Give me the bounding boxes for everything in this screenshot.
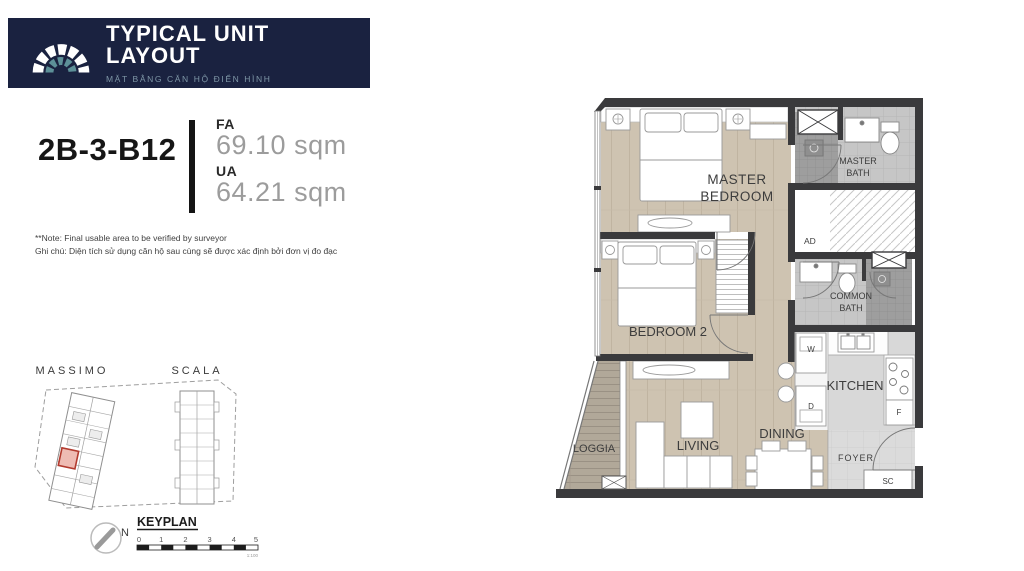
scale-caption: 1:100 bbox=[247, 553, 259, 558]
page-title: TYPICAL UNIT LAYOUT bbox=[106, 23, 370, 67]
svg-text:3: 3 bbox=[208, 535, 212, 544]
room-label-kitchen: KITCHEN bbox=[826, 378, 883, 393]
tag-washer: W bbox=[807, 345, 815, 354]
room-label-master-bedroom-1: MASTER bbox=[707, 172, 766, 187]
vertical-divider bbox=[189, 120, 195, 213]
tag-shoe-cabinet: SC bbox=[882, 477, 893, 486]
fa-label: FA bbox=[216, 117, 347, 131]
highlighted-unit bbox=[58, 448, 78, 469]
header-banner: TYPICAL UNIT LAYOUT MẶT BẰNG CĂN HỘ ĐIỂN… bbox=[8, 18, 370, 88]
keyplan-building-left-label: MASSIMO bbox=[36, 365, 109, 377]
page: TYPICAL UNIT LAYOUT MẶT BẰNG CĂN HỘ ĐIỂN… bbox=[0, 0, 1024, 571]
floorplan: MASTER BEDROOM MASTER BATH AD COMMON BAT… bbox=[540, 85, 935, 525]
room-label-bedroom2: BEDROOM 2 bbox=[629, 324, 707, 339]
scale-bar: 0 1 2 3 4 5 1:100 bbox=[137, 535, 259, 558]
svg-text:0: 0 bbox=[137, 535, 141, 544]
fa-value: 69.10 sqm bbox=[216, 132, 347, 159]
tag-dryer: D bbox=[808, 402, 814, 411]
room-label-dining: DINING bbox=[759, 426, 805, 441]
keyplan-building-right-label: SCALA bbox=[171, 365, 222, 377]
drain-x-icon bbox=[602, 476, 626, 489]
building-scala bbox=[175, 391, 219, 504]
page-subtitle: MẶT BẰNG CĂN HỘ ĐIỂN HÌNH bbox=[106, 74, 370, 84]
svg-text:4: 4 bbox=[232, 535, 236, 544]
svg-text:1: 1 bbox=[159, 535, 163, 544]
footnote-line-2: Ghi chú: Diện tích sử dụng căn hộ sau cù… bbox=[35, 245, 337, 258]
unit-code: 2B-3-B12 bbox=[38, 132, 176, 168]
room-label-master-bath-1: MASTER bbox=[839, 156, 877, 166]
room-label-living: LIVING bbox=[677, 438, 720, 453]
arch-logo-icon bbox=[30, 30, 92, 76]
north-label: N bbox=[121, 527, 129, 539]
footnote-line-1: **Note: Final usable area to be verified… bbox=[35, 232, 337, 245]
room-label-master-bath-2: BATH bbox=[846, 168, 869, 178]
keyplan-title: KEYPLAN bbox=[137, 515, 197, 529]
area-block: FA 69.10 sqm UA 64.21 sqm bbox=[216, 117, 347, 211]
svg-text:5: 5 bbox=[254, 535, 258, 544]
tag-ad: AD bbox=[804, 236, 816, 246]
ua-value: 64.21 sqm bbox=[216, 179, 347, 206]
svg-text:2: 2 bbox=[183, 535, 187, 544]
loggia-deck bbox=[564, 361, 620, 490]
room-label-common-bath-2: BATH bbox=[839, 303, 862, 313]
footnote: **Note: Final usable area to be verified… bbox=[35, 232, 337, 258]
building-massimo bbox=[49, 393, 115, 510]
room-label-loggia: LOGGIA bbox=[573, 443, 616, 455]
room-label-common-bath-1: COMMON bbox=[830, 291, 872, 301]
keyplan: MASSIMO SCALA bbox=[15, 355, 280, 567]
north-compass-icon bbox=[91, 523, 121, 553]
ua-label: UA bbox=[216, 164, 347, 178]
room-label-master-bedroom-2: BEDROOM bbox=[700, 189, 773, 204]
room-label-foyer: FOYER bbox=[838, 453, 874, 463]
tag-fridge: F bbox=[897, 408, 902, 417]
